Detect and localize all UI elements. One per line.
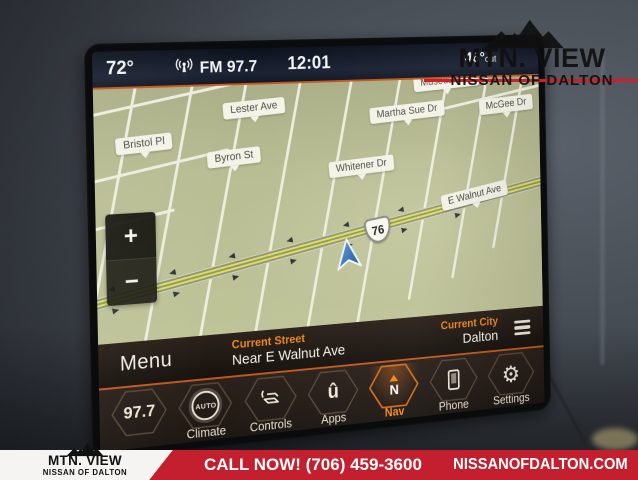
road [302,76,354,345]
taskbar-settings-tile[interactable]: ⚙ Settings [482,349,540,408]
map-canvas[interactable]: Musedale Dr Lester Ave Martha Sue Dr McG… [93,76,543,345]
taskbar-media-tile[interactable]: 97.7 [105,385,173,436]
dashboard-seam [601,55,604,365]
dealer-logo-top: MTN. VIEW NISSAN OF DALTON [426,16,638,89]
dealer-banner: MTN. VIEW NISSAN OF DALTON CALL NOW! (70… [0,450,638,480]
taskbar-apps-tile[interactable]: û Apps [302,367,365,429]
taskbar-controls-tile[interactable]: Controls [238,373,303,436]
vehicle-position-arrow [332,236,363,273]
street-label: Bristol Pl [115,132,173,155]
zoom-in-button[interactable]: + [105,212,156,261]
dealer-logo-bottom: MTN. VIEW NISSAN OF DALTON [10,441,160,477]
map-zoom-control: + − [105,212,157,306]
dealer-name: MTN. VIEW [10,454,160,468]
street-label: Lester Ave [222,97,285,120]
infotainment-screen: 72° FM 97.7 12:01 46°out [84,34,551,461]
taskbar-phone-tile[interactable]: Phone [424,355,483,415]
phone-icon [447,369,459,390]
dealer-subname: NISSAN OF DALTON [10,468,160,477]
street-label: Martha Sue Dr [369,100,444,124]
current-street-block: Current Street Near E Walnut Ave [232,329,346,369]
screen-bezel: 72° FM 97.7 12:01 46°out [84,34,551,461]
banner-phone-number: CALL NOW! (706) 459-3600 [204,455,422,475]
street-label: Byron St [206,146,261,169]
dealer-name: MTN. VIEW [426,45,638,72]
zoom-out-button[interactable]: − [106,257,157,306]
dashboard-trim [592,428,638,450]
dealer-subname: NISSAN OF DALTON [426,72,638,89]
map-options-menu-icon[interactable] [514,319,530,335]
taskbar-climate-tile[interactable]: AUTO Climate [172,379,239,443]
current-city-block: Current City Dalton [441,316,499,350]
taskbar-nav-tile[interactable]: N Nav [363,361,424,422]
banner-website: NISSANOFDALTON.COM [453,456,628,474]
nav-menu-button[interactable]: Menu [120,348,173,376]
